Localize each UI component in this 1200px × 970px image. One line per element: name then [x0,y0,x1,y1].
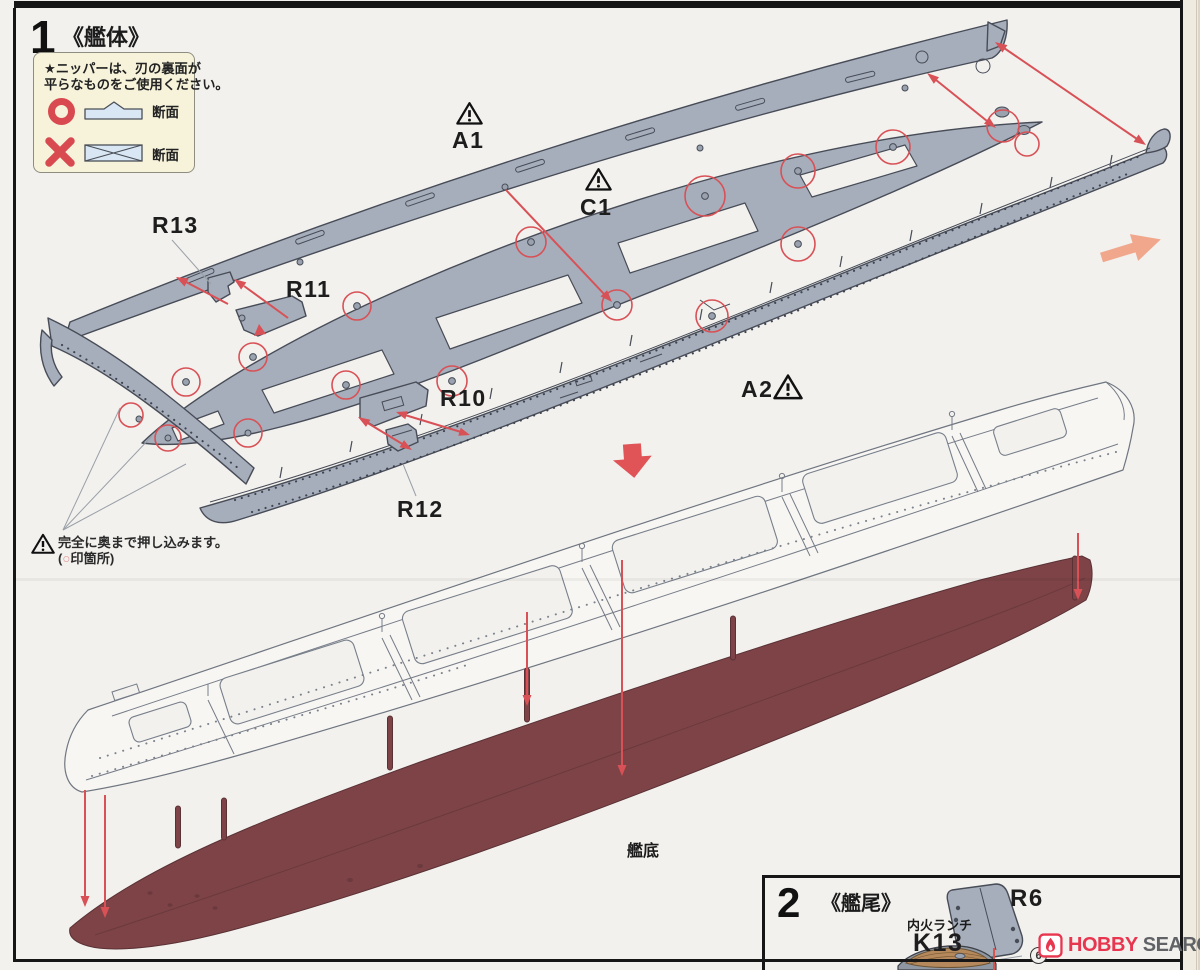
label-c1: C1 [580,196,612,219]
direction-arrow [1097,226,1164,271]
good-cut-caption: 断面 [152,101,179,121]
part-r11-clip [236,296,306,336]
good-mark-icon [48,98,75,125]
bad-mark-icon [45,137,75,167]
step2-title: 《艦尾》 [821,894,901,914]
bottom-border-line [13,959,1181,962]
warning-triangle-icon [585,167,612,191]
watermark-hobby: HOBBY [1068,934,1138,957]
bad-cut-diagram [84,139,144,165]
label-a1: A1 [452,129,484,152]
instruction-sheet-page: 1 《艦体》 ★ニッパーは、刃の裏面が 平らなものをご使用ください。 断面 断面… [0,0,1200,970]
label-r12: R12 [397,498,444,521]
fold-crease [13,578,1180,581]
step2-box-top-border [762,875,1181,878]
watermark-search: SEARCH [1143,934,1200,957]
push-note-rest: 印箇所) [70,551,114,566]
part-r13-clip [208,272,234,302]
good-cut-diagram [84,97,144,123]
flame-logo-icon [1038,933,1063,958]
hull-bottom-label: 艦底 [627,844,659,860]
label-r13: R13 [152,214,199,237]
step2-box-left-border [762,875,765,970]
top-border-line [14,1,1181,8]
label-r6: R6 [1010,887,1044,911]
label-a2: A2 [741,378,773,401]
push-note-line1: 完全に奥まで押し込みます。 [58,536,228,549]
nipper-note-line1: ★ニッパーは、刃の裏面が [44,61,201,78]
bad-cut-caption: 断面 [152,144,179,164]
nipper-note-box: ★ニッパーは、刃の裏面が 平らなものをご使用ください。 断面 断面 [33,52,195,173]
left-border-line [13,8,16,960]
push-note-line2: (○印箇所) [58,552,114,565]
label-r11: R11 [286,278,331,301]
warning-triangle-icon [456,101,483,125]
step-down-arrow [612,443,653,480]
warning-triangle-icon [773,373,803,400]
warning-triangle-icon [31,533,55,554]
hobbysearch-watermark: HOBBY SEARCH [1038,933,1200,958]
nipper-note-line2: 平らなものをご使用ください。 [44,77,229,94]
step1-title: 《艦体》 [62,27,150,49]
step2-number: 2 [777,882,800,924]
label-r10: R10 [440,387,487,410]
scan-edge-shadow [1196,0,1197,970]
label-k13: K13 [913,931,963,956]
